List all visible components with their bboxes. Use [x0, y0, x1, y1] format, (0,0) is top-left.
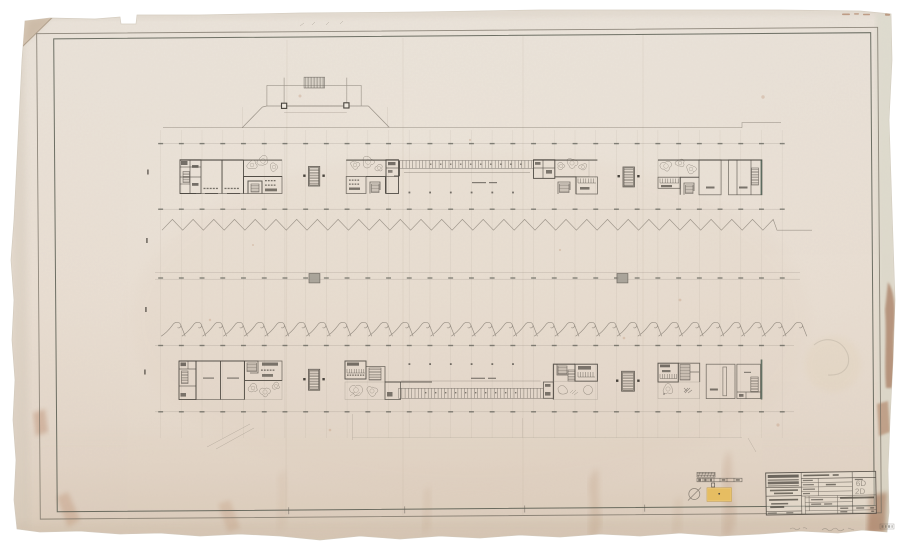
svg-text:2D: 2D	[855, 487, 866, 496]
